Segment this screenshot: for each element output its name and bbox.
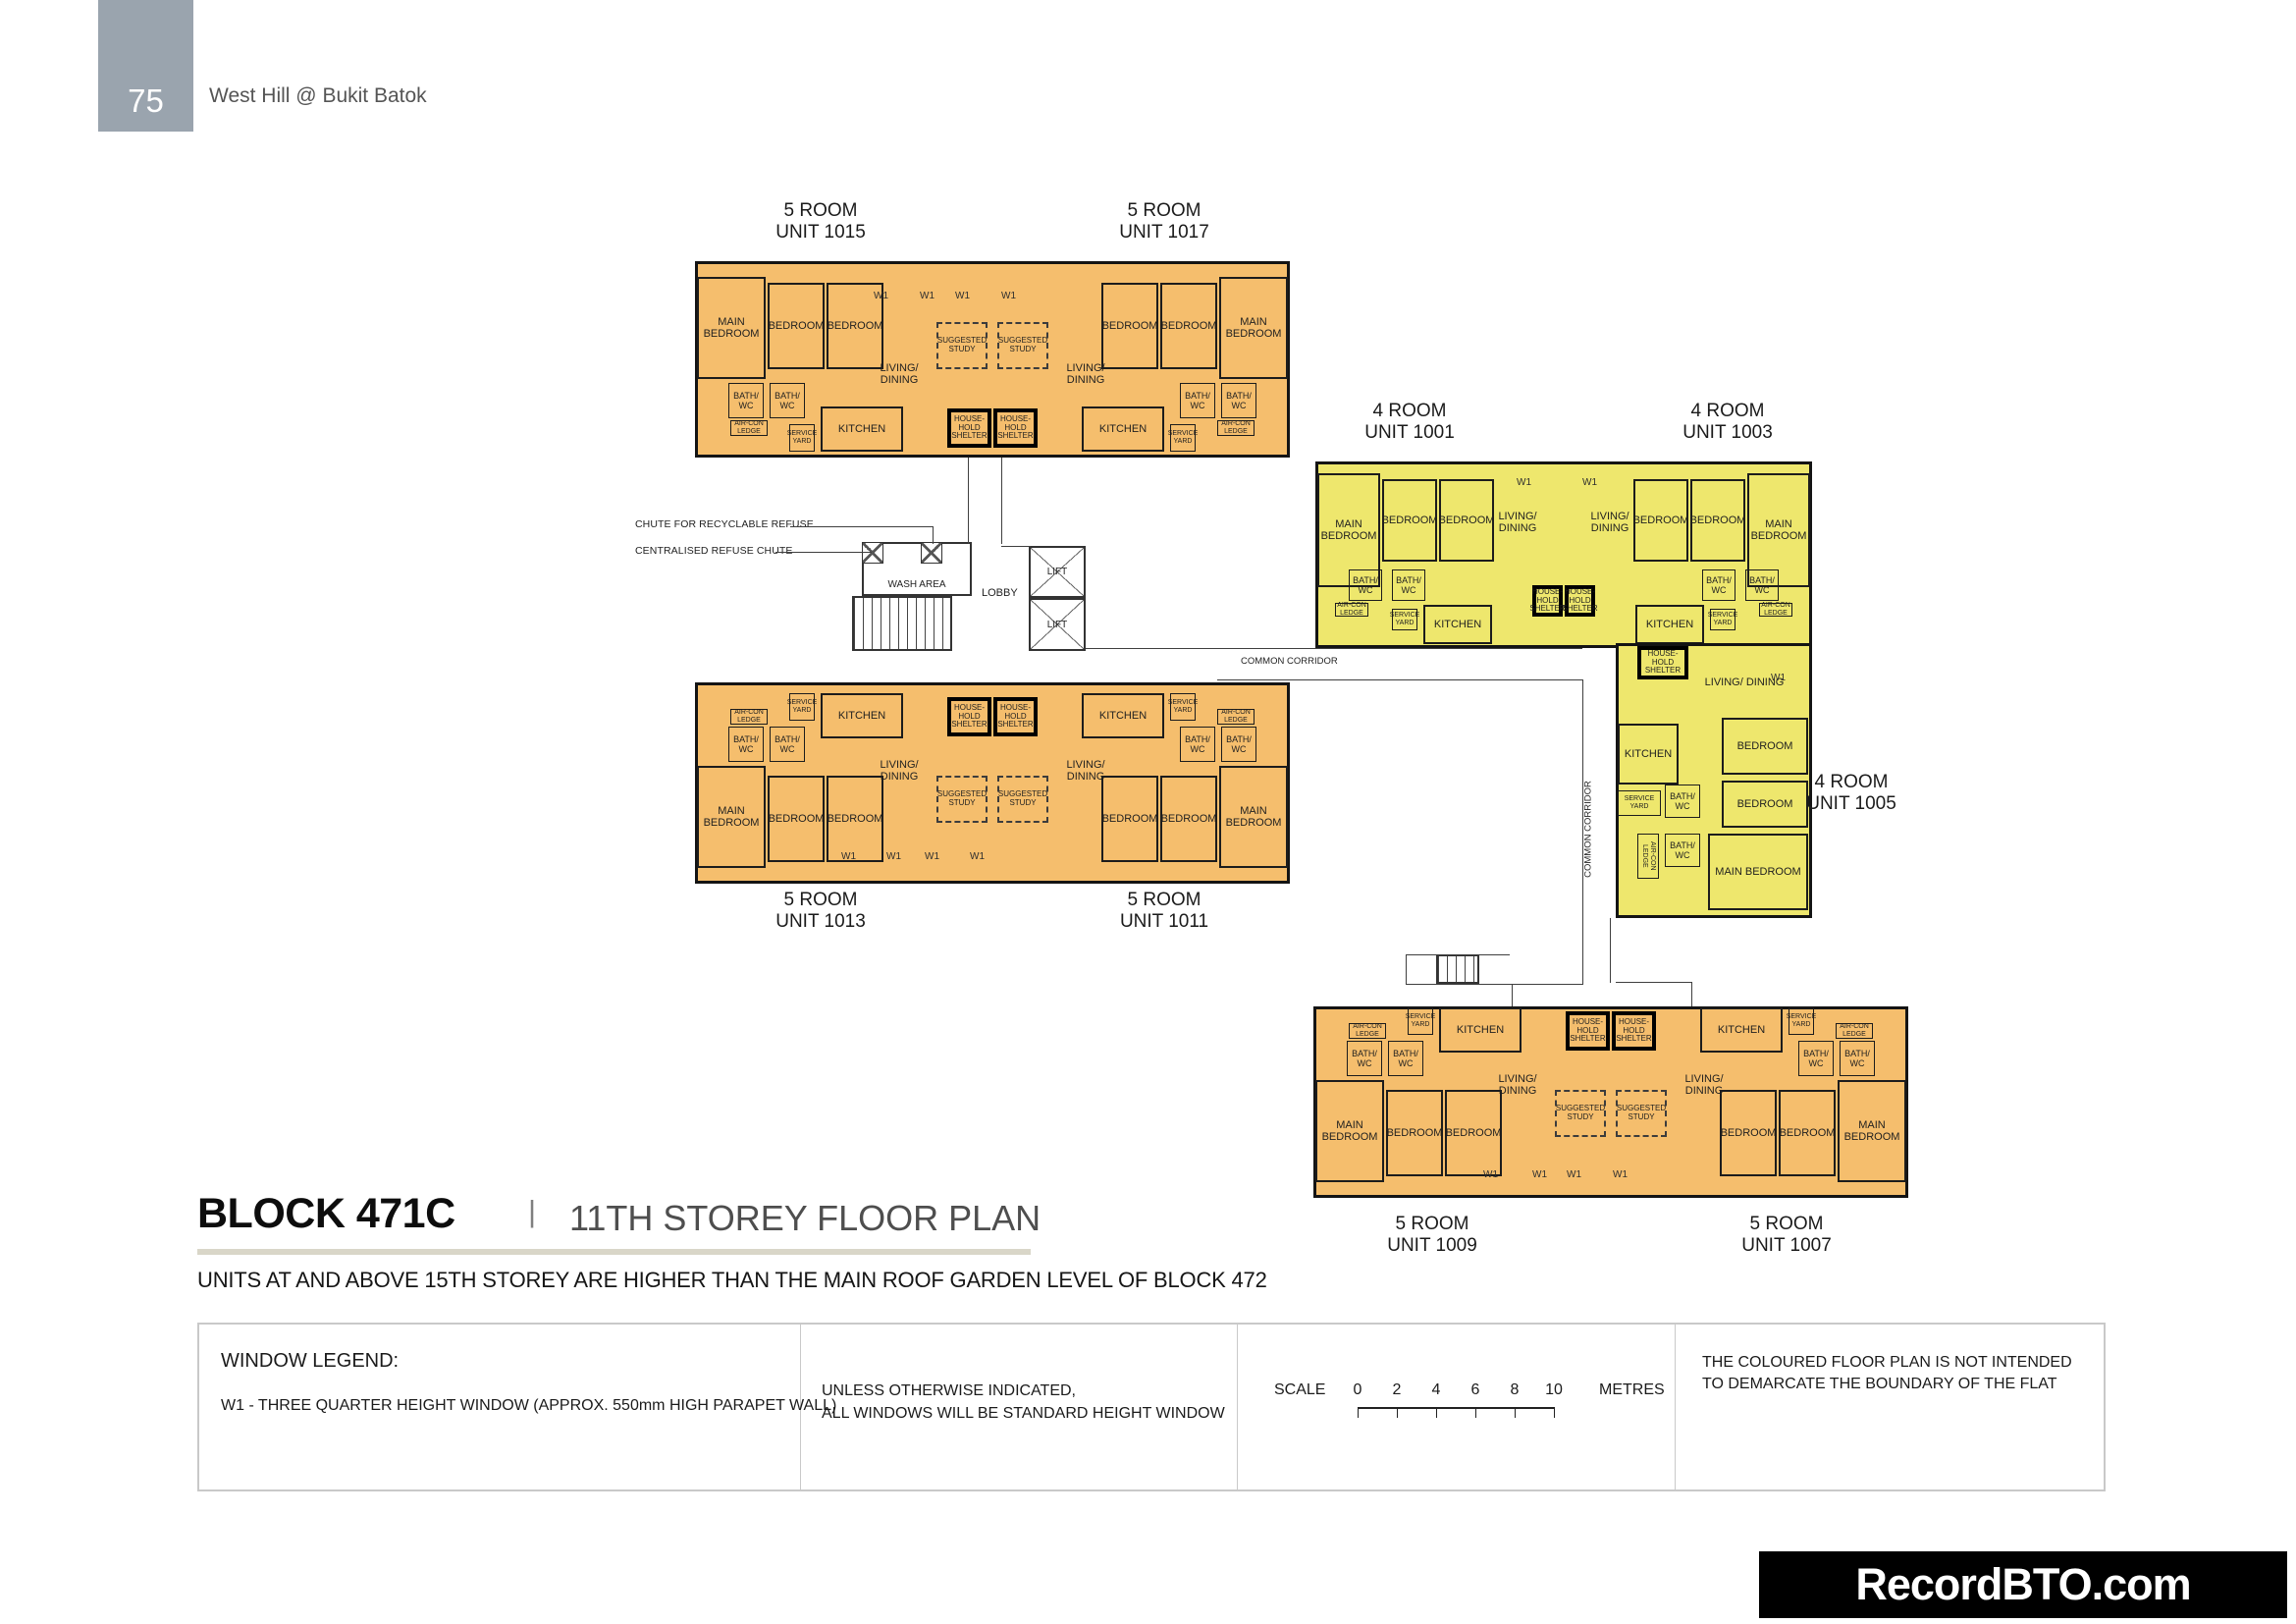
unit-type-label: 4 ROOM (1326, 401, 1493, 422)
room-suggested-study: SUGGESTED STUDY (997, 322, 1048, 369)
room-bedroom: BEDROOM (1382, 479, 1437, 562)
room-bath-wc: BATH/ WC (1665, 834, 1700, 867)
unit-label: 4 ROOMUNIT 1001 (1326, 401, 1493, 445)
unit-label: 5 ROOMUNIT 1007 (1703, 1214, 1870, 1258)
room-bedroom: BEDROOM (1160, 776, 1217, 862)
lift-box: LIFT (1029, 546, 1086, 598)
storey-note: UNITS AT AND ABOVE 15TH STOREY ARE HIGHE… (197, 1268, 1267, 1293)
unit-label: 5 ROOMUNIT 1017 (1081, 200, 1248, 244)
room-service-yard: SERVICE YARD (1710, 609, 1735, 630)
unit-type-label: 5 ROOM (1703, 1214, 1870, 1235)
room-service-yard: SERVICE YARD (1170, 424, 1196, 452)
room-household-shelter: HOUSE- HOLD SHELTER (947, 408, 991, 448)
unit-number-label: UNIT 1015 (737, 222, 904, 244)
unit-label: 5 ROOMUNIT 1009 (1349, 1214, 1516, 1258)
corridor-line (933, 526, 934, 544)
room-household-shelter: HOUSE- HOLD SHELTER (993, 408, 1038, 448)
unit-label: 4 ROOMUNIT 1003 (1644, 401, 1811, 445)
unit-number-label: UNIT 1009 (1349, 1235, 1516, 1257)
room-bath-wc: BATH/ WC (1180, 727, 1215, 762)
w1-window-label: W1 (1483, 1169, 1498, 1180)
storey-title: 11TH STOREY FLOOR PLAN (569, 1198, 1041, 1239)
room-living-dining: LIVING/ DINING (1478, 1066, 1557, 1104)
room-bath-wc: BATH/ WC (1745, 569, 1779, 601)
room-bath-wc: BATH/ WC (1840, 1041, 1875, 1076)
unit-type-label: 5 ROOM (1349, 1214, 1516, 1235)
scale-tick: 6 (1456, 1381, 1495, 1399)
w1-window-label: W1 (1001, 291, 1016, 301)
room-kitchen: KITCHEN (1439, 1007, 1522, 1053)
corridor-line (775, 552, 872, 553)
windows-note: UNLESS OTHERWISE INDICATED, ALL WINDOWS … (822, 1380, 1225, 1425)
room-aircon-ledge: AIR-CON LEDGE (1637, 834, 1659, 879)
chute-recyclable-label: CHUTE FOR RECYCLABLE REFUSE (635, 518, 814, 530)
room-household-shelter: HOUSE- HOLD SHELTER (947, 697, 991, 736)
room-aircon-ledge: AIR-CON LEDGE (1217, 709, 1255, 725)
staircase-small (1436, 954, 1479, 984)
block-title: BLOCK 471C (197, 1190, 455, 1238)
room-main-bedroom: MAIN BEDROOM (1838, 1080, 1906, 1182)
corridor-line (1086, 648, 1582, 649)
room-main-bedroom: MAIN BEDROOM (1219, 277, 1288, 379)
room-aircon-ledge: AIR-CON LEDGE (730, 420, 768, 436)
room-household-shelter: HOUSE- HOLD SHELTER (1612, 1011, 1656, 1051)
w1-description: W1 - THREE QUARTER HEIGHT WINDOW (APPROX… (221, 1397, 836, 1415)
floor-plan-page: 75 West Hill @ Bukit Batok MAIN BEDROOMB… (0, 0, 2296, 1624)
room-household-shelter: HOUSE- HOLD SHELTER (1637, 646, 1688, 679)
w1-window-label: W1 (970, 851, 985, 862)
room-bath-wc: BATH/ WC (1347, 1041, 1382, 1076)
title-divider: | (528, 1194, 536, 1229)
room-main-bedroom: MAIN BEDROOM (1708, 834, 1808, 910)
room-bedroom: BEDROOM (1690, 479, 1745, 562)
room-living-dining: LIVING/ DINING (1046, 355, 1125, 393)
room-kitchen: KITCHEN (1423, 605, 1492, 644)
room-bath-wc: BATH/ WC (1798, 1041, 1834, 1076)
unit-type-label: 5 ROOM (737, 200, 904, 222)
room-bath-wc: BATH/ WC (1221, 727, 1256, 762)
unit-label: 5 ROOMUNIT 1011 (1081, 890, 1248, 934)
corridor-line (968, 458, 969, 544)
w1-window-label: W1 (1567, 1169, 1581, 1180)
room-aircon-ledge: AIR-CON LEDGE (1217, 420, 1255, 436)
windows-note-line1: UNLESS OTHERWISE INDICATED, (822, 1380, 1225, 1402)
scale-ticks: 0 2 4 6 8 10 (1338, 1381, 1574, 1399)
room-living-dining: LIVING/ DINING (1046, 752, 1125, 789)
room-suggested-study: SUGGESTED STUDY (1555, 1090, 1606, 1137)
room-suggested-study: SUGGESTED STUDY (936, 322, 988, 369)
unit-number-label: UNIT 1003 (1644, 422, 1811, 444)
room-bath-wc: BATH/ WC (728, 727, 764, 762)
w1-window-label: W1 (1517, 477, 1531, 488)
legend-box: WINDOW LEGEND: W1 - THREE QUARTER HEIGHT… (197, 1323, 2106, 1491)
corridor-line (1610, 918, 1611, 983)
w1-window-label: W1 (1532, 1169, 1547, 1180)
corridor-line (1582, 679, 1583, 985)
unit-number-label: UNIT 1005 (1768, 793, 1935, 815)
unit-number-label: UNIT 1001 (1326, 422, 1493, 444)
room-bath-wc: BATH/ WC (1392, 569, 1425, 601)
corridor-line (1217, 679, 1582, 680)
room-bedroom: BEDROOM (1722, 718, 1808, 775)
room-aircon-ledge: AIR-CON LEDGE (1759, 603, 1792, 617)
cluster-units-1001-1003: MAIN BEDROOMBEDROOMBEDROOMBATH/ WCBATH/ … (1315, 461, 1812, 648)
room-bath-wc: BATH/ WC (1702, 569, 1735, 601)
unit-label: 5 ROOMUNIT 1013 (737, 890, 904, 934)
cluster-units-1009-1007: MAIN BEDROOMBEDROOMBEDROOMBATH/ WCBATH/ … (1313, 1006, 1908, 1198)
room-kitchen: KITCHEN (1618, 724, 1679, 785)
boundary-note-line1: THE COLOURED FLOOR PLAN IS NOT INTENDED (1702, 1352, 2072, 1374)
corridor-line (1512, 985, 1513, 1006)
room-bedroom: BEDROOM (768, 283, 825, 369)
unit-number-label: UNIT 1007 (1703, 1235, 1870, 1257)
centralised-chute-label: CENTRALISED REFUSE CHUTE (635, 545, 793, 557)
w1-window-label: W1 (955, 291, 970, 301)
legend-divider (1675, 1325, 1676, 1489)
w1-window-label: W1 (920, 291, 934, 301)
w1-window-label: W1 (886, 851, 901, 862)
common-corridor-label: COMMON CORRIDOR (1241, 656, 1338, 667)
room-bath-wc: BATH/ WC (1221, 383, 1256, 418)
room-aircon-ledge: AIR-CON LEDGE (1335, 603, 1368, 617)
legend-divider (1237, 1325, 1238, 1489)
unit-type-label: 5 ROOM (737, 890, 904, 911)
room-bedroom: BEDROOM (768, 776, 825, 862)
room-living-dining: LIVING/ DINING (1482, 505, 1553, 540)
scale-tick: 2 (1377, 1381, 1416, 1399)
title-underline (197, 1249, 1031, 1255)
w1-window-label: W1 (1582, 477, 1597, 488)
room-kitchen: KITCHEN (1082, 406, 1164, 452)
room-aircon-ledge: AIR-CON LEDGE (1836, 1023, 1873, 1039)
room-kitchen: KITCHEN (1700, 1007, 1783, 1053)
room-household-shelter: HOUSE- HOLD SHELTER (993, 697, 1038, 736)
room-main-bedroom: MAIN BEDROOM (697, 277, 766, 379)
room-bedroom: BEDROOM (1779, 1090, 1836, 1176)
room-service-yard: SERVICE YARD (1170, 693, 1196, 721)
room-main-bedroom: MAIN BEDROOM (697, 766, 766, 868)
boundary-note-line2: TO DEMARCATE THE BOUNDARY OF THE FLAT (1702, 1374, 2072, 1395)
room-kitchen: KITCHEN (821, 693, 903, 738)
refuse-chute-box (862, 542, 883, 564)
room-bath-wc: BATH/ WC (1349, 569, 1382, 601)
room-main-bedroom: MAIN BEDROOM (1315, 1080, 1384, 1182)
room-household-shelter: HOUSE- HOLD SHELTER (1565, 585, 1595, 617)
unit-number-label: UNIT 1011 (1081, 911, 1248, 933)
room-suggested-study: SUGGESTED STUDY (1616, 1090, 1667, 1137)
lobby-label: LOBBY (982, 587, 1018, 599)
room-main-bedroom: MAIN BEDROOM (1219, 766, 1288, 868)
unit-type-label: 4 ROOM (1644, 401, 1811, 422)
scale-bar (1358, 1407, 1555, 1418)
corridor-line (1001, 458, 1002, 544)
scale-unit: METRES (1599, 1381, 1665, 1399)
room-service-yard: SERVICE YARD (1392, 609, 1417, 630)
unit-number-label: UNIT 1017 (1081, 222, 1248, 244)
scale-tick: 4 (1416, 1381, 1456, 1399)
room-bath-wc: BATH/ WC (1180, 383, 1215, 418)
room-service-yard: SERVICE YARD (1408, 1007, 1433, 1035)
room-bath-wc: BATH/ WC (728, 383, 764, 418)
corridor-line (1616, 982, 1692, 983)
room-bath-wc: BATH/ WC (770, 383, 805, 418)
room-service-yard: SERVICE YARD (1618, 790, 1661, 816)
corridor-line (790, 526, 934, 527)
w1-window-label: W1 (841, 851, 856, 862)
unit-type-label: 5 ROOM (1081, 200, 1248, 222)
room-aircon-ledge: AIR-CON LEDGE (730, 709, 768, 725)
w1-window-label: W1 (1771, 673, 1786, 683)
room-kitchen: KITCHEN (1635, 605, 1704, 644)
scale-tick: 0 (1338, 1381, 1377, 1399)
window-legend-title: WINDOW LEGEND: (221, 1350, 399, 1373)
scale-tick: 10 (1534, 1381, 1574, 1399)
corridor-line (1691, 982, 1692, 1006)
room-living-dining: LIVING/ DINING (1575, 505, 1645, 540)
unit-label: 5 ROOMUNIT 1015 (737, 200, 904, 244)
room-bath-wc: BATH/ WC (1388, 1041, 1423, 1076)
watermark-banner: RecordBTO.com (1759, 1551, 2287, 1618)
unit-type-label: 5 ROOM (1081, 890, 1248, 911)
staircase (852, 596, 952, 651)
scale-tick: 8 (1495, 1381, 1534, 1399)
room-bath-wc: BATH/ WC (770, 727, 805, 762)
room-suggested-study: SUGGESTED STUDY (997, 776, 1048, 823)
w1-window-label: W1 (925, 851, 939, 862)
cluster-units-1013-1011: MAIN BEDROOMBEDROOMBEDROOMBATH/ WCBATH/ … (695, 682, 1290, 884)
room-kitchen: KITCHEN (821, 406, 903, 452)
room-household-shelter: HOUSE- HOLD SHELTER (1532, 585, 1563, 617)
room-suggested-study: SUGGESTED STUDY (936, 776, 988, 823)
watermark-text: RecordBTO.com (1855, 1559, 2190, 1610)
scale-label: SCALE (1274, 1381, 1325, 1399)
recyclable-chute-box (921, 542, 942, 564)
room-living-dining: LIVING/ DINING (1665, 1066, 1743, 1104)
unit-label: 4 ROOMUNIT 1005 (1768, 772, 1935, 816)
unit-number-label: UNIT 1013 (737, 911, 904, 933)
room-kitchen: KITCHEN (1082, 693, 1164, 738)
room-bedroom: BEDROOM (1386, 1090, 1443, 1176)
room-aircon-ledge: AIR-CON LEDGE (1349, 1023, 1386, 1039)
unit-type-label: 4 ROOM (1768, 772, 1935, 793)
w1-window-label: W1 (1613, 1169, 1628, 1180)
w1-window-label: W1 (874, 291, 888, 301)
room-bedroom: BEDROOM (1160, 283, 1217, 369)
room-household-shelter: HOUSE- HOLD SHELTER (1566, 1011, 1610, 1051)
lift-box: LIFT (1029, 598, 1086, 651)
room-living-dining: LIVING/ DINING (860, 752, 938, 789)
windows-note-line2: ALL WINDOWS WILL BE STANDARD HEIGHT WIND… (822, 1402, 1225, 1425)
common-corridor-label-vertical: COMMON CORRIDOR (1583, 776, 1594, 884)
room-service-yard: SERVICE YARD (789, 424, 815, 452)
corridor-line (1406, 954, 1407, 985)
corridor-line (1001, 546, 1031, 547)
corridor-line (1406, 984, 1582, 985)
boundary-note: THE COLOURED FLOOR PLAN IS NOT INTENDED … (1702, 1352, 2072, 1394)
corridor-line (1406, 954, 1510, 955)
room-service-yard: SERVICE YARD (789, 693, 815, 721)
room-service-yard: SERVICE YARD (1789, 1007, 1814, 1035)
cluster-units-1015-1017: MAIN BEDROOMBEDROOMBEDROOMBATH/ WCBATH/ … (695, 261, 1290, 458)
room-bath-wc: BATH/ WC (1665, 785, 1700, 818)
room-living-dining: LIVING/ DINING (860, 355, 938, 393)
